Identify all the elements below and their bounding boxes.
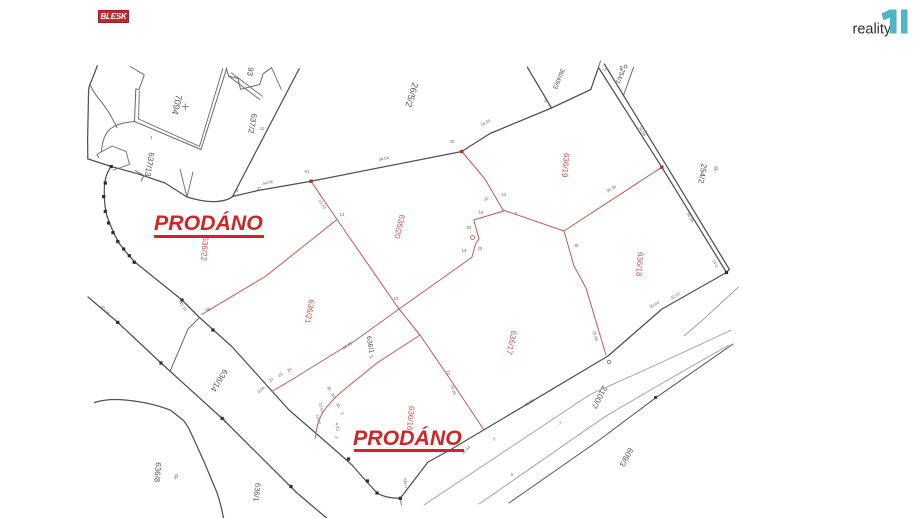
svg-text:23: 23 [445, 370, 451, 377]
svg-text:36.96: 36.96 [685, 211, 695, 223]
svg-text:11: 11 [544, 98, 549, 103]
svg-text:636/18: 636/18 [634, 252, 645, 278]
svg-text:24: 24 [268, 376, 275, 383]
svg-text:25: 25 [478, 246, 483, 251]
svg-text:254/2: 254/2 [696, 163, 708, 185]
svg-text:35: 35 [335, 402, 342, 409]
svg-text:p: p [620, 65, 623, 71]
svg-text:7094: 7094 [170, 94, 184, 116]
svg-text:26/5/2: 26/5/2 [403, 81, 420, 108]
svg-text:637/2: 637/2 [246, 113, 258, 135]
svg-text:7: 7 [493, 437, 496, 442]
svg-text:24: 24 [368, 353, 375, 360]
svg-text:p: p [174, 474, 178, 480]
svg-text:30.64: 30.64 [648, 300, 660, 310]
svg-text:31: 31 [257, 186, 262, 191]
svg-text:36/49/3: 36/49/3 [551, 67, 566, 90]
svg-text:3: 3 [340, 411, 346, 416]
svg-text:4: 4 [150, 135, 153, 140]
svg-text:13: 13 [340, 212, 345, 217]
svg-text:38: 38 [206, 307, 211, 312]
svg-text:40-14: 40-14 [99, 304, 111, 315]
svg-text:16.05: 16.05 [480, 118, 492, 127]
svg-text:26: 26 [286, 366, 293, 373]
svg-text:636/20: 636/20 [392, 214, 406, 240]
svg-text:26.33: 26.33 [449, 384, 457, 396]
svg-text:60: 60 [467, 225, 472, 230]
svg-text:p: p [714, 166, 718, 172]
svg-text:44.06: 44.06 [262, 179, 274, 186]
svg-text:25: 25 [277, 371, 284, 378]
svg-text:91: 91 [305, 169, 310, 174]
svg-text:4.04: 4.04 [256, 385, 266, 395]
svg-text:40.06: 40.06 [523, 397, 535, 407]
svg-text:636/21: 636/21 [303, 299, 316, 325]
svg-text:10.01: 10.01 [318, 402, 326, 414]
svg-text:40: 40 [483, 195, 490, 202]
svg-text:636/1: 636/1 [365, 335, 375, 354]
svg-text:5: 5 [511, 472, 514, 477]
svg-text:13: 13 [462, 248, 467, 253]
svg-text:-4: -4 [603, 67, 607, 72]
svg-text:609/3: 609/3 [617, 446, 635, 468]
svg-text:34.04: 34.04 [378, 155, 390, 162]
svg-text:40: 40 [574, 243, 579, 248]
svg-text:636/17: 636/17 [504, 330, 518, 356]
svg-text:36: 36 [326, 385, 333, 392]
svg-text:40.09: 40.09 [341, 340, 353, 350]
svg-text:28.06: 28.06 [592, 330, 600, 342]
svg-text:636/14: 636/14 [209, 368, 230, 394]
svg-text:2100/7: 2100/7 [589, 384, 609, 410]
svg-text:636/8: 636/8 [152, 462, 163, 483]
svg-text:-3: -3 [334, 434, 340, 439]
svg-text:7: 7 [559, 421, 562, 426]
svg-text:30.36: 30.36 [605, 184, 617, 194]
svg-text:reality: reality [853, 22, 892, 38]
svg-text:23.23: 23.23 [317, 198, 327, 210]
svg-text:4: 4 [236, 188, 239, 193]
svg-text:40: 40 [450, 139, 455, 144]
svg-text:433-7: 433-7 [403, 478, 408, 489]
svg-text:18: 18 [479, 210, 484, 215]
svg-text:93: 93 [245, 67, 255, 77]
svg-text:12: 12 [502, 192, 507, 197]
svg-text:637/13: 637/13 [143, 152, 156, 178]
svg-text:34: 34 [330, 392, 337, 399]
svg-text:636/19: 636/19 [560, 153, 571, 179]
svg-text:636/22: 636/22 [199, 236, 210, 262]
svg-text:15: 15 [394, 296, 399, 301]
svg-text:636/1: 636/1 [251, 482, 262, 502]
svg-text:11: 11 [260, 126, 265, 131]
svg-text:45-16: 45-16 [178, 300, 189, 312]
svg-text:4.33: 4.33 [334, 422, 340, 432]
